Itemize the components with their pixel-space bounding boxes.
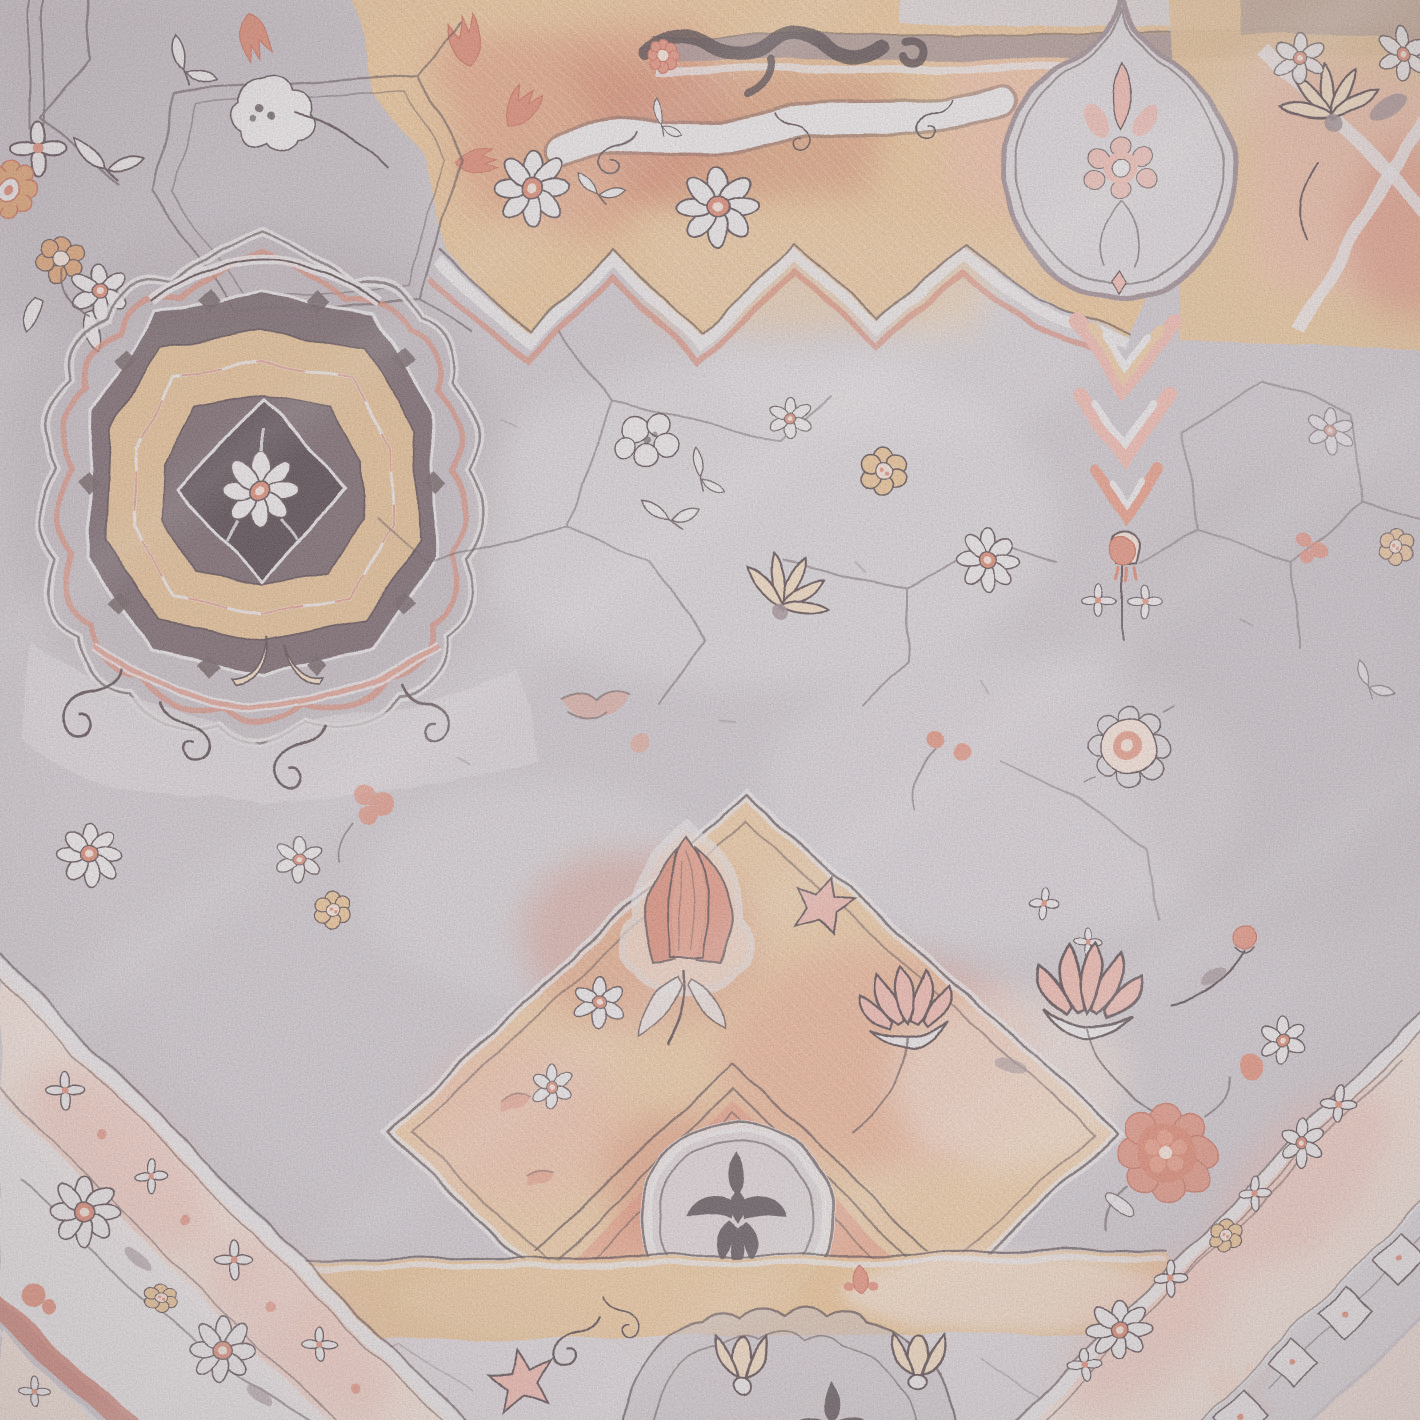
rug-artwork: Close-up photograph of a faded vintage o…	[0, 0, 1420, 1420]
fabric-texture	[0, 0, 1420, 1420]
rug-photo: Close-up photograph of a faded vintage o…	[0, 0, 1420, 1420]
